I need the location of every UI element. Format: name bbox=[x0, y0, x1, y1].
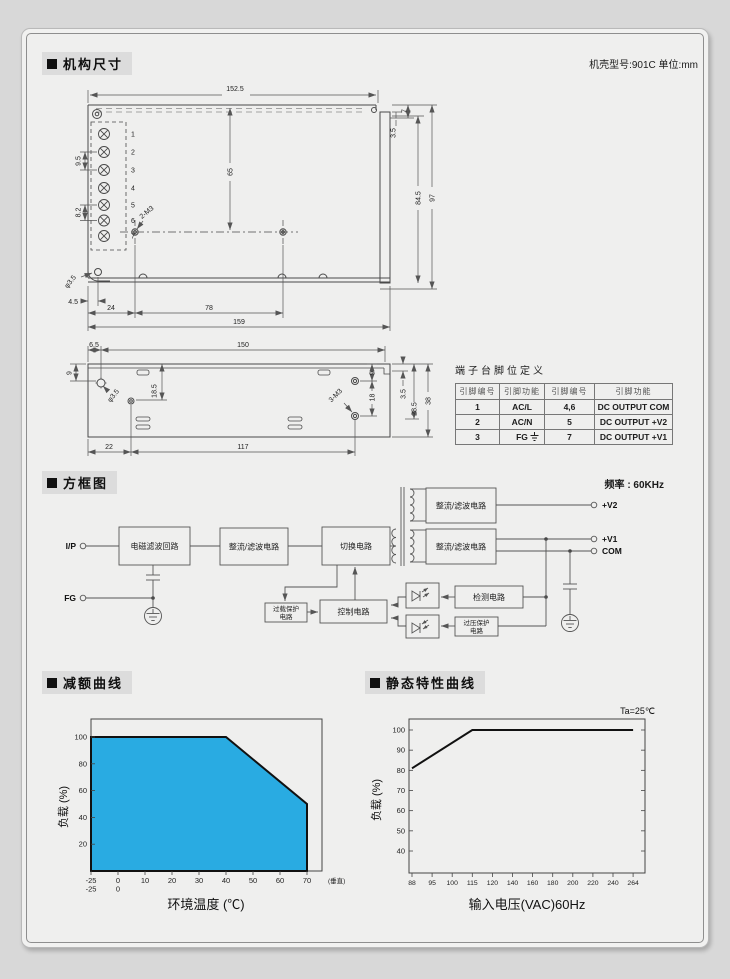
terminal-table-cell: FG bbox=[500, 430, 545, 445]
table-row: 2AC/N5DC OUTPUT +V2 bbox=[456, 415, 673, 430]
terminal-table-header: 引脚编号 bbox=[545, 384, 595, 400]
terminal-table-cell: DC OUTPUT COM bbox=[595, 400, 673, 415]
section-header-static: 静态特性曲线 bbox=[365, 671, 485, 694]
case-model-note: 机壳型号:901C 单位:mm bbox=[589, 56, 698, 71]
terminal-table-header: 引脚功能 bbox=[595, 384, 673, 400]
terminal-table-cell: 1 bbox=[456, 400, 500, 415]
section-header-mech: 机构尺寸 bbox=[42, 52, 132, 75]
section-bullet-icon bbox=[370, 678, 380, 688]
section-title-static: 静态特性曲线 bbox=[386, 673, 476, 692]
section-title-derating: 减额曲线 bbox=[63, 673, 123, 692]
terminal-table-cell: AC/N bbox=[500, 415, 545, 430]
terminal-table-title: 端子台脚位定义 bbox=[455, 362, 705, 377]
terminal-table-cell: 2 bbox=[456, 415, 500, 430]
section-bullet-icon bbox=[47, 59, 57, 69]
section-title-block: 方框图 bbox=[63, 473, 108, 492]
section-bullet-icon bbox=[47, 678, 57, 688]
terminal-table-cell: AC/L bbox=[500, 400, 545, 415]
section-title-mech: 机构尺寸 bbox=[63, 54, 123, 73]
terminal-table-header: 引脚编号 bbox=[456, 384, 500, 400]
ground-icon bbox=[530, 432, 539, 441]
terminal-table-cell: DC OUTPUT +V1 bbox=[595, 430, 673, 445]
section-header-derating: 减额曲线 bbox=[42, 671, 132, 694]
frequency-note: 频率 : 60KHz bbox=[605, 476, 664, 491]
section-header-block: 方框图 bbox=[42, 471, 117, 494]
terminal-table-cell: 7 bbox=[545, 430, 595, 445]
terminal-table-cell: 5 bbox=[545, 415, 595, 430]
terminal-table-cell: 4,6 bbox=[545, 400, 595, 415]
terminal-table-cell: 3 bbox=[456, 430, 500, 445]
terminal-table-header: 引脚功能 bbox=[500, 384, 545, 400]
section-bullet-icon bbox=[47, 478, 57, 488]
terminal-pin-table: 端子台脚位定义 引脚编号引脚功能引脚编号引脚功能1AC/L4,6DC OUTPU… bbox=[455, 362, 705, 445]
table-row: 1AC/L4,6DC OUTPUT COM bbox=[456, 400, 673, 415]
datasheet-page: 机构尺寸 机壳型号:901C 单位:mm bbox=[0, 0, 730, 979]
table-row: 3FG7DC OUTPUT +V1 bbox=[456, 430, 673, 445]
content-panel-inner bbox=[26, 33, 704, 943]
terminal-table: 引脚编号引脚功能引脚编号引脚功能1AC/L4,6DC OUTPUT COM2AC… bbox=[455, 383, 673, 445]
terminal-table-cell: DC OUTPUT +V2 bbox=[595, 415, 673, 430]
